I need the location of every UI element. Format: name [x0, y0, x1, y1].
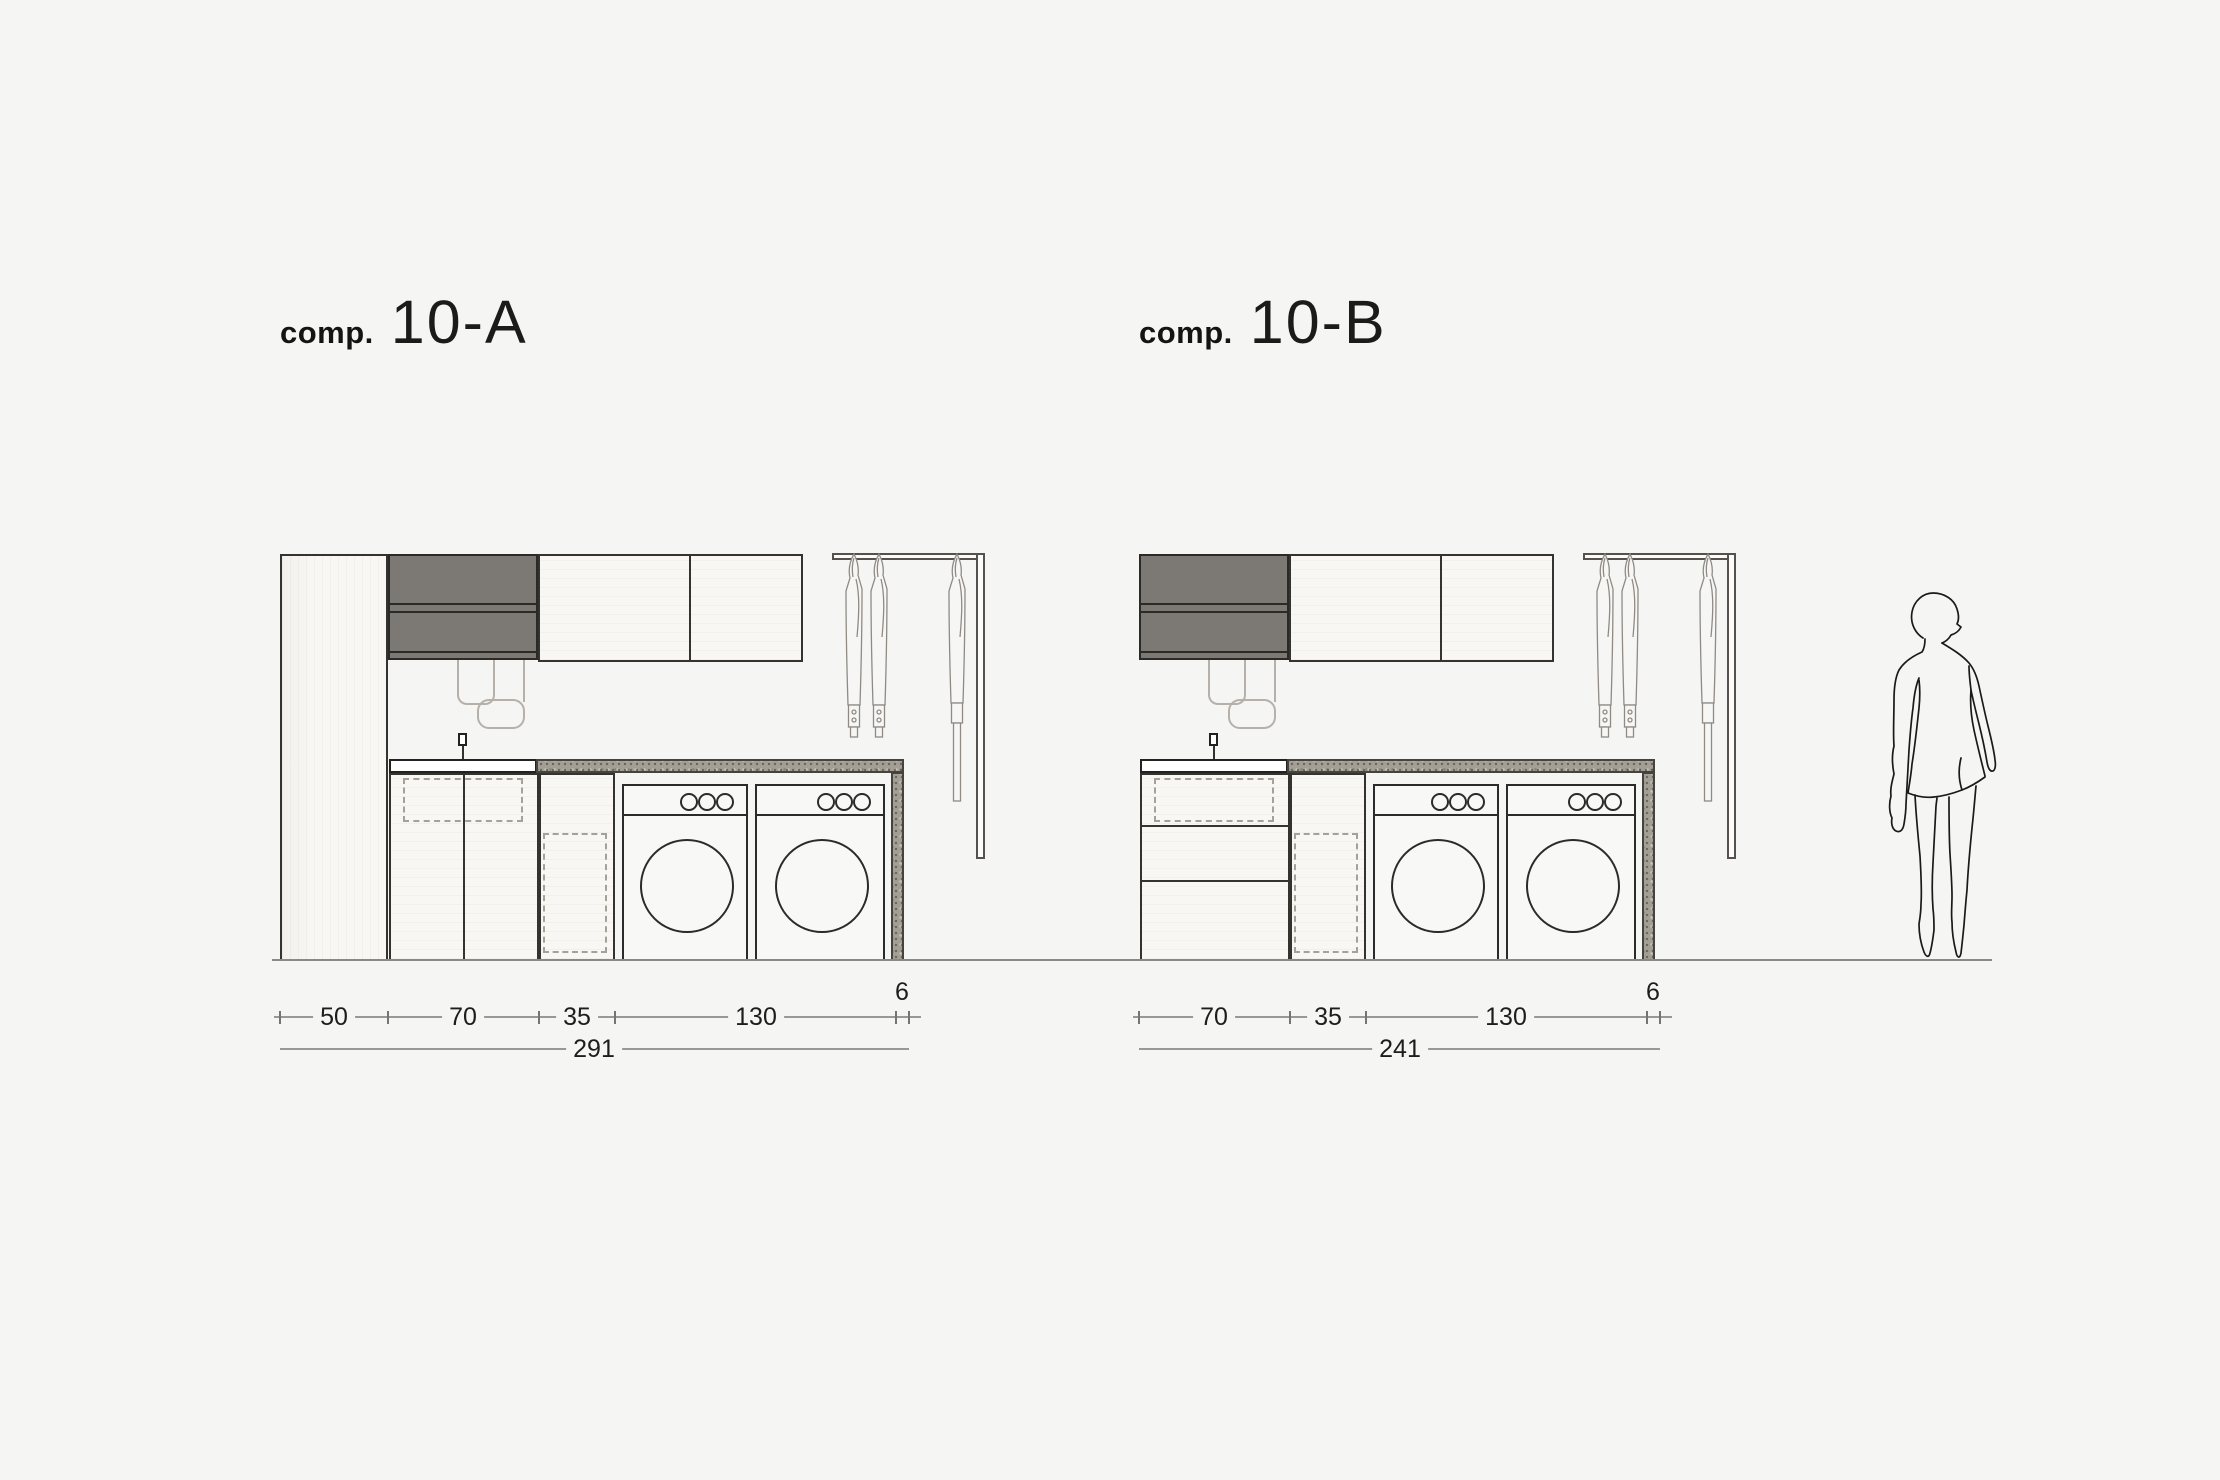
drawer-divider	[1142, 880, 1288, 882]
dimension-tick	[387, 1011, 389, 1024]
tall-cabinet	[280, 554, 388, 961]
wall-cabinet-dark	[1139, 554, 1289, 660]
boiler-trap-outline	[1228, 699, 1276, 729]
washer-door	[640, 839, 734, 933]
washing-machine	[755, 784, 885, 961]
dimension-label: 130	[1478, 1003, 1534, 1031]
dimension-tick	[1659, 1011, 1661, 1024]
washer-knob	[1467, 793, 1485, 811]
washer-control-panel	[624, 786, 746, 816]
hanging-rail-post	[976, 553, 985, 859]
composition-a-title: comp. 10-A	[280, 287, 528, 357]
dimension-label: 50	[313, 1003, 355, 1031]
garment-bag-hanger	[843, 553, 865, 743]
washer-knob	[716, 793, 734, 811]
washer-knob	[1604, 793, 1622, 811]
dimension-label: 35	[1307, 1003, 1349, 1031]
countertop	[536, 759, 904, 773]
washer-knob	[1431, 793, 1449, 811]
garment-bag-hanger	[868, 553, 890, 743]
wall-cabinet-white	[538, 554, 803, 662]
faucet-head	[1209, 733, 1218, 746]
wall-cabinet-dark-divider	[390, 603, 536, 613]
countertop-end-panel	[1642, 772, 1655, 961]
laundry-basket-outline	[1294, 833, 1358, 953]
wall-cabinet-white	[1289, 554, 1554, 662]
hanging-rail-post	[1727, 553, 1736, 859]
wall-cabinet-dark-bottom-edge	[390, 651, 536, 658]
garment-bag-hanger	[1594, 553, 1616, 743]
composition-b-title: comp. 10-B	[1139, 287, 1387, 357]
dimension-label: 70	[442, 1003, 484, 1031]
countertop-end-panel	[891, 772, 904, 961]
wall-cabinet-dark-divider	[1141, 603, 1287, 613]
dimension-tick	[614, 1011, 616, 1024]
countertop	[1287, 759, 1655, 773]
hidden-sink-outline	[1154, 778, 1274, 822]
washing-machine	[1373, 784, 1499, 961]
dimension-tick	[1646, 1011, 1648, 1024]
human-scale-figure	[1888, 590, 2004, 970]
dimension-tick	[1138, 1011, 1140, 1024]
dimension-total-label: 291	[566, 1035, 622, 1063]
dimension-label: 6	[895, 978, 909, 1006]
washer-door	[775, 839, 869, 933]
elevation-drawing-sheet: comp. 10-A comp. 10-B	[0, 0, 2220, 1480]
washing-machine	[622, 784, 748, 961]
drawer-divider	[1142, 825, 1288, 827]
washer-knob	[1586, 793, 1604, 811]
washer-knob	[835, 793, 853, 811]
composition-b-title-name: 10-B	[1250, 287, 1387, 357]
dimension-label: 70	[1193, 1003, 1235, 1031]
washer-knob	[1449, 793, 1467, 811]
washer-knob	[817, 793, 835, 811]
dimension-tick	[1289, 1011, 1291, 1024]
wall-cabinet-door-divider	[689, 556, 691, 660]
composition-a-title-prefix: comp.	[280, 315, 374, 351]
washer-control-panel	[1375, 786, 1497, 816]
garment-bag-hanger-long	[1697, 553, 1719, 803]
dimension-tick	[908, 1011, 910, 1024]
washing-machine	[1506, 784, 1636, 961]
composition-a-title-name: 10-A	[391, 287, 528, 357]
wall-cabinet-dark	[388, 554, 538, 660]
washer-door	[1526, 839, 1620, 933]
boiler-trap-outline	[477, 699, 525, 729]
composition-b-title-prefix: comp.	[1139, 315, 1233, 351]
sink-top-slab	[1140, 759, 1288, 773]
washer-control-panel	[1508, 786, 1634, 816]
dimension-label: 6	[1646, 978, 1660, 1006]
dimension-total-label: 241	[1372, 1035, 1428, 1063]
faucet-head	[458, 733, 467, 746]
boiler-pipe-line	[523, 660, 525, 702]
dimension-tick	[538, 1011, 540, 1024]
floor-line	[272, 959, 1992, 961]
washer-knob	[680, 793, 698, 811]
washer-knob	[853, 793, 871, 811]
sink-top-slab	[389, 759, 537, 773]
dimension-label: 35	[556, 1003, 598, 1031]
washer-knob	[1568, 793, 1586, 811]
dimension-tick	[279, 1011, 281, 1024]
garment-bag-hanger	[1619, 553, 1641, 743]
laundry-basket-outline	[543, 833, 607, 953]
garment-bag-hanger-long	[946, 553, 968, 803]
washer-door	[1391, 839, 1485, 933]
dimension-tick	[1365, 1011, 1367, 1024]
boiler-pipe-line	[1274, 660, 1276, 702]
dimension-tick	[895, 1011, 897, 1024]
hidden-sink-outline	[403, 778, 523, 822]
wall-cabinet-door-divider	[1440, 556, 1442, 660]
washer-control-panel	[757, 786, 883, 816]
dimension-label: 130	[728, 1003, 784, 1031]
washer-knob	[698, 793, 716, 811]
wall-cabinet-dark-bottom-edge	[1141, 651, 1287, 658]
